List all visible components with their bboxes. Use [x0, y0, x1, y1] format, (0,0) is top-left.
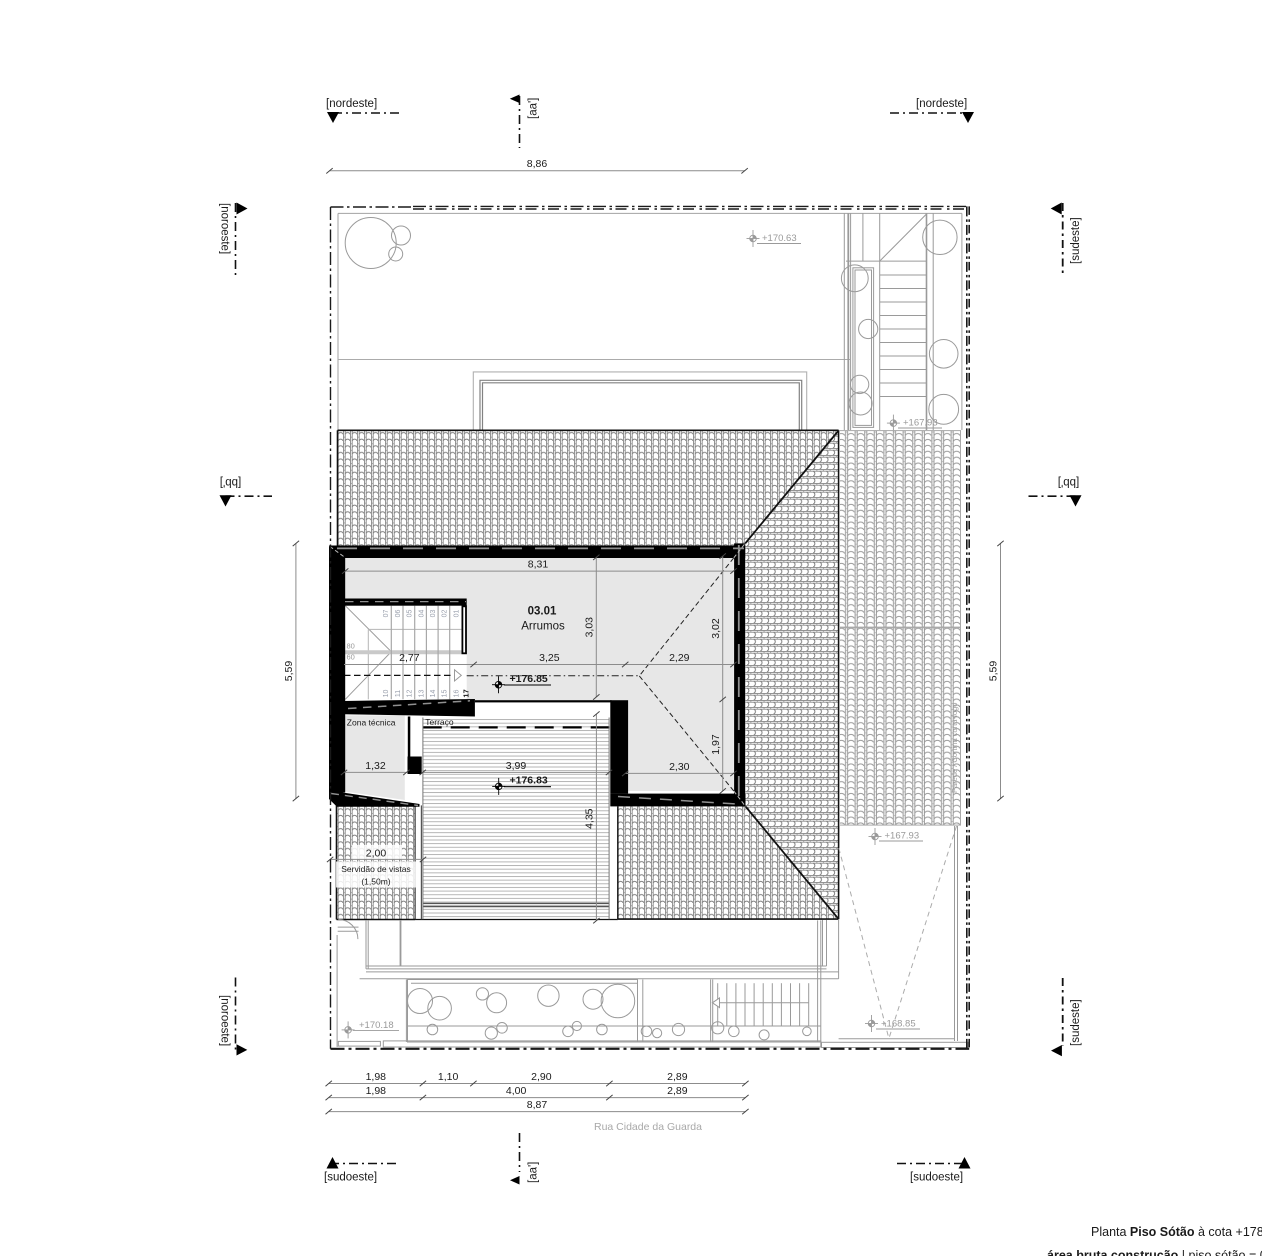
svg-text:[sudoeste]: [sudoeste] — [910, 1172, 963, 1184]
svg-text:2,29: 2,29 — [669, 652, 690, 664]
svg-text:13: 13 — [418, 690, 425, 698]
svg-text:+176.85: +176.85 — [510, 673, 548, 685]
svg-text:1,97: 1,97 — [710, 734, 722, 755]
svg-text:2,89: 2,89 — [667, 1085, 688, 1097]
svg-text:12: 12 — [407, 690, 414, 698]
svg-text:(1,50m): (1,50m) — [361, 876, 390, 886]
svg-text:17: 17 — [462, 689, 471, 697]
svg-text:8,86: 8,86 — [527, 158, 548, 170]
svg-text:3,02: 3,02 — [710, 618, 722, 639]
svg-text:02: 02 — [442, 610, 449, 618]
svg-text:Parede / Cortina corta-fogo: Parede / Cortina corta-fogo — [950, 703, 959, 793]
svg-text:[sudoeste]: [sudoeste] — [324, 1172, 377, 1184]
svg-text:Zona técnica: Zona técnica — [347, 718, 396, 728]
svg-text:14: 14 — [430, 690, 437, 698]
svg-text:60: 60 — [347, 653, 355, 662]
svg-text:Arrumos: Arrumos — [521, 621, 565, 633]
svg-text:5,59: 5,59 — [283, 661, 295, 682]
svg-text:2,30: 2,30 — [669, 761, 690, 773]
svg-text:1,98: 1,98 — [366, 1085, 387, 1097]
svg-text:15: 15 — [442, 690, 449, 698]
svg-text:11: 11 — [395, 690, 402, 697]
svg-text:Planta Piso Sótão à cota +178: Planta Piso Sótão à cota +178 — [1091, 1225, 1262, 1239]
svg-text:03.01: 03.01 — [528, 606, 557, 618]
svg-text:+170.18: +170.18 — [359, 1020, 394, 1031]
svg-text:[nordeste]: [nordeste] — [916, 98, 967, 110]
svg-text:10: 10 — [383, 690, 390, 698]
svg-text:[sudeste]: [sudeste] — [1070, 999, 1082, 1046]
svg-text:[sudeste]: [sudeste] — [1070, 217, 1082, 264]
svg-text:8,31: 8,31 — [528, 559, 549, 571]
svg-text:[bb']: [bb'] — [220, 476, 241, 488]
svg-text:2,90: 2,90 — [531, 1071, 552, 1083]
svg-text:2,89: 2,89 — [667, 1071, 688, 1083]
svg-text:8,87: 8,87 — [527, 1099, 548, 1111]
svg-text:1,98: 1,98 — [366, 1071, 387, 1083]
svg-text:2,77: 2,77 — [399, 652, 420, 664]
svg-text:+167.93: +167.93 — [885, 831, 920, 842]
svg-text:Rua Cidade da Guarda: Rua Cidade da Guarda — [594, 1121, 702, 1133]
svg-text:3,03: 3,03 — [584, 617, 596, 638]
svg-text:4,35: 4,35 — [584, 808, 596, 829]
svg-text:Servidão de vistas: Servidão de vistas — [341, 864, 410, 874]
svg-text:[noroeste]: [noroeste] — [219, 203, 231, 254]
svg-text:07: 07 — [383, 610, 390, 618]
svg-text:04: 04 — [418, 610, 425, 618]
svg-text:2,00: 2,00 — [366, 847, 387, 859]
svg-text:03: 03 — [430, 610, 437, 618]
svg-text:3,99: 3,99 — [506, 760, 527, 772]
svg-text:[bb']: [bb'] — [1058, 476, 1079, 488]
svg-text:[noroeste]: [noroeste] — [219, 995, 231, 1046]
svg-text:80: 80 — [347, 642, 355, 651]
svg-text:01: 01 — [453, 610, 460, 618]
svg-text:[nordeste]: [nordeste] — [326, 98, 377, 110]
svg-text:[aa']: [aa'] — [528, 1162, 540, 1183]
svg-text:3,25: 3,25 — [539, 652, 560, 664]
svg-text:4,00: 4,00 — [506, 1085, 527, 1097]
svg-text:05: 05 — [407, 610, 414, 618]
svg-text:+176.83: +176.83 — [510, 775, 548, 787]
svg-text:06: 06 — [395, 610, 402, 618]
svg-text:+170.63: +170.63 — [762, 233, 797, 244]
svg-text:1,10: 1,10 — [438, 1071, 459, 1083]
svg-text:área bruta construção | piso s: área bruta construção | piso sótão = 031 — [1047, 1249, 1262, 1256]
svg-text:+168.85: +168.85 — [881, 1019, 916, 1030]
svg-text:1,32: 1,32 — [365, 760, 386, 772]
svg-text:5,59: 5,59 — [988, 661, 1000, 682]
svg-text:+167.93: +167.93 — [903, 418, 938, 429]
svg-text:[aa']: [aa'] — [528, 98, 540, 119]
svg-text:16: 16 — [453, 690, 460, 698]
svg-text:Terraço: Terraço — [425, 717, 454, 727]
